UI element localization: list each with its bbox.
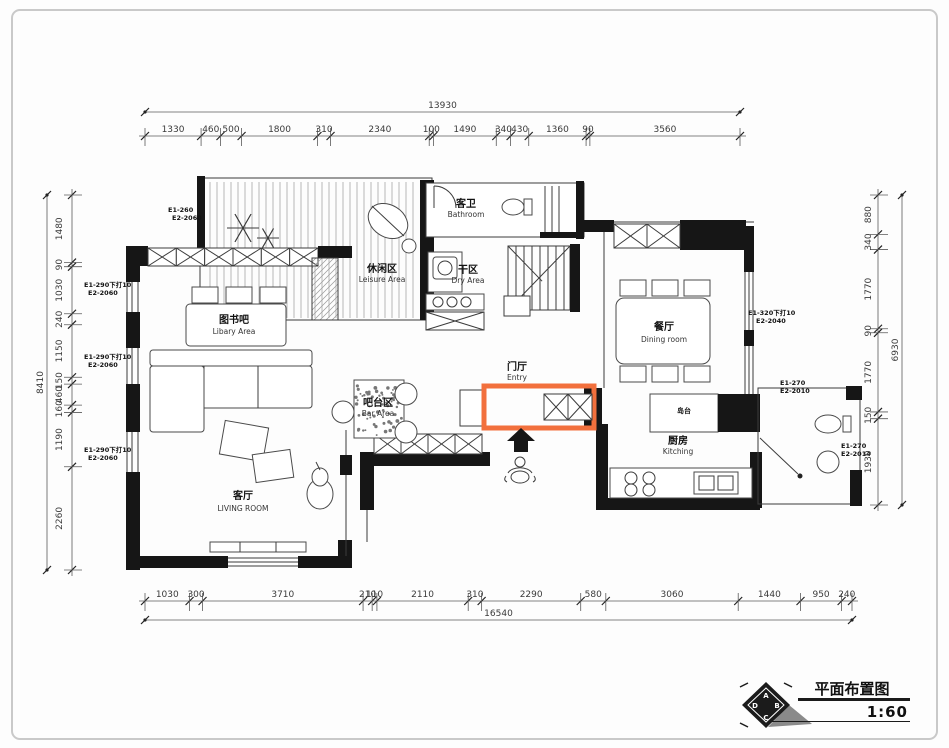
annotation-text: E1-260 [168, 206, 194, 214]
svg-text:1190: 1190 [55, 428, 65, 451]
svg-text:100: 100 [423, 125, 440, 135]
svg-text:3710: 3710 [271, 590, 294, 600]
svg-text:1800: 1800 [268, 125, 291, 135]
title-rule-thin [772, 721, 910, 722]
room-label-library-zh: 图书吧 [219, 313, 249, 326]
svg-text:240: 240 [838, 590, 855, 600]
annotation-text: E2-2060 [88, 361, 118, 369]
floor-plan-page: 客卫 Bathroom 休闲区 Leisure Area 干区 Dry Area… [0, 0, 949, 748]
room-label-dry-en: Dry Area [452, 276, 485, 285]
logo-letter-top: A [763, 692, 769, 700]
drawing-scale: 1:60 [867, 703, 908, 721]
dry-area-cabinet [426, 312, 484, 330]
annotation-text: E1-320下打10 [748, 308, 796, 317]
drawing-title: 平面布置图 [814, 680, 889, 698]
room-label-leisure-zh: 休闲区 [366, 262, 397, 275]
room-label-kitchen-zh: 厨房 [668, 434, 688, 447]
svg-text:460: 460 [202, 125, 219, 135]
svg-text:310: 310 [466, 590, 483, 600]
plant-decor-icon [257, 228, 279, 247]
annotation-text: E2-2060 [172, 214, 202, 222]
svg-text:2110: 2110 [411, 590, 434, 600]
svg-text:6930: 6930 [891, 338, 901, 361]
annotation-text: E2-2040 [756, 317, 786, 325]
svg-text:340: 340 [495, 125, 512, 135]
svg-text:300: 300 [187, 590, 204, 600]
svg-text:13930: 13930 [428, 101, 457, 111]
svg-text:3060: 3060 [661, 590, 684, 600]
svg-text:1150: 1150 [55, 339, 65, 362]
svg-text:310: 310 [315, 125, 332, 135]
title-rule-thick [798, 698, 910, 701]
svg-text:2290: 2290 [520, 590, 543, 600]
room-label-living-en: LIVING ROOM [217, 504, 268, 513]
annotation-text: E2-2060 [88, 454, 118, 462]
svg-text:110: 110 [366, 590, 383, 600]
room-label-dry-zh: 干区 [458, 264, 478, 276]
annotation-text: E1-290下打10 [84, 280, 132, 289]
svg-text:90: 90 [582, 125, 594, 135]
svg-text:1770: 1770 [864, 277, 874, 300]
svg-text:3560: 3560 [653, 125, 676, 135]
person-figure-icon [505, 457, 536, 483]
svg-text:150: 150 [864, 406, 874, 423]
annotation-text: E1-290下打10 [84, 352, 132, 361]
svg-text:90: 90 [55, 259, 65, 271]
svg-text:90: 90 [864, 325, 874, 337]
annotation-text: E2-2060 [88, 289, 118, 297]
room-label-bar-en: Bar Area [362, 409, 394, 418]
svg-text:1770: 1770 [864, 361, 874, 384]
svg-text:8410: 8410 [36, 371, 46, 394]
annotation-text: E1-290下打10 [84, 445, 132, 454]
svg-text:880: 880 [864, 206, 874, 223]
svg-text:1330: 1330 [162, 125, 185, 135]
svg-text:1030: 1030 [55, 279, 65, 302]
title-block: A B C D 平面布置图 1:60 [740, 680, 910, 728]
room-label-bar-zh: 吧台区 [363, 396, 393, 409]
entry-direction-arrow-icon [507, 428, 535, 452]
room-label-entry-zh: 门厅 [507, 360, 527, 373]
plant-decor-icon [227, 214, 259, 242]
svg-text:340: 340 [864, 233, 874, 250]
entry-shoe-cabinet [544, 394, 592, 420]
svg-text:2340: 2340 [368, 125, 391, 135]
svg-text:1440: 1440 [758, 590, 781, 600]
svg-text:1360: 1360 [546, 125, 569, 135]
svg-text:2260: 2260 [55, 507, 65, 530]
annotation-text: E1-270 [841, 442, 867, 450]
room-label-bathroom-en: Bathroom [448, 210, 485, 219]
svg-text:950: 950 [812, 590, 829, 600]
svg-text:500: 500 [222, 125, 239, 135]
bookshelf-hatch [312, 258, 338, 320]
dimension-chain-right: 880340177090177015019306930 [864, 189, 906, 511]
svg-text:1480: 1480 [55, 217, 65, 240]
svg-text:16540: 16540 [484, 609, 513, 619]
svg-text:1030: 1030 [156, 590, 179, 600]
room-label-kitchen-en: Kitching [663, 447, 694, 456]
room-label-living-zh: 客厅 [232, 489, 253, 502]
svg-text:160: 160 [55, 400, 65, 417]
logo-letter-bottom: C [763, 714, 768, 722]
svg-text:430: 430 [511, 125, 528, 135]
annotation-text: E2-2010 [780, 387, 810, 395]
dimension-chain-top: 1330460500180031023401001490340430136090… [139, 101, 746, 146]
dimension-chain-left: 14809010302401150150460160119022608410 [36, 189, 82, 576]
room-label-leisure-en: Leisure Area [359, 275, 406, 284]
room-label-island-zh: 岛台 [677, 406, 691, 415]
svg-text:580: 580 [585, 590, 602, 600]
svg-text:240: 240 [55, 310, 65, 327]
room-label-dining-en: Dining room [641, 335, 687, 344]
room-label-entry-en: Entry [507, 373, 528, 382]
dimension-chain-bottom: 1030300371021011021103102290580306014409… [139, 590, 858, 624]
logo-letter-left: D [752, 702, 758, 710]
room-label-library-en: Libary Area [213, 327, 256, 336]
room-label-dining-zh: 餐厅 [653, 320, 674, 333]
svg-text:1490: 1490 [453, 125, 476, 135]
sideboard-cabinet [614, 224, 680, 248]
floor-plan-drawing: 客卫 Bathroom 休闲区 Leisure Area 干区 Dry Area… [0, 0, 949, 748]
svg-text:1930: 1930 [864, 450, 874, 473]
logo-letter-right: B [774, 702, 779, 710]
library-top-cabinet [148, 248, 318, 266]
room-label-bathroom-zh: 客卫 [455, 197, 476, 210]
annotation-text: E1-270 [780, 379, 806, 387]
